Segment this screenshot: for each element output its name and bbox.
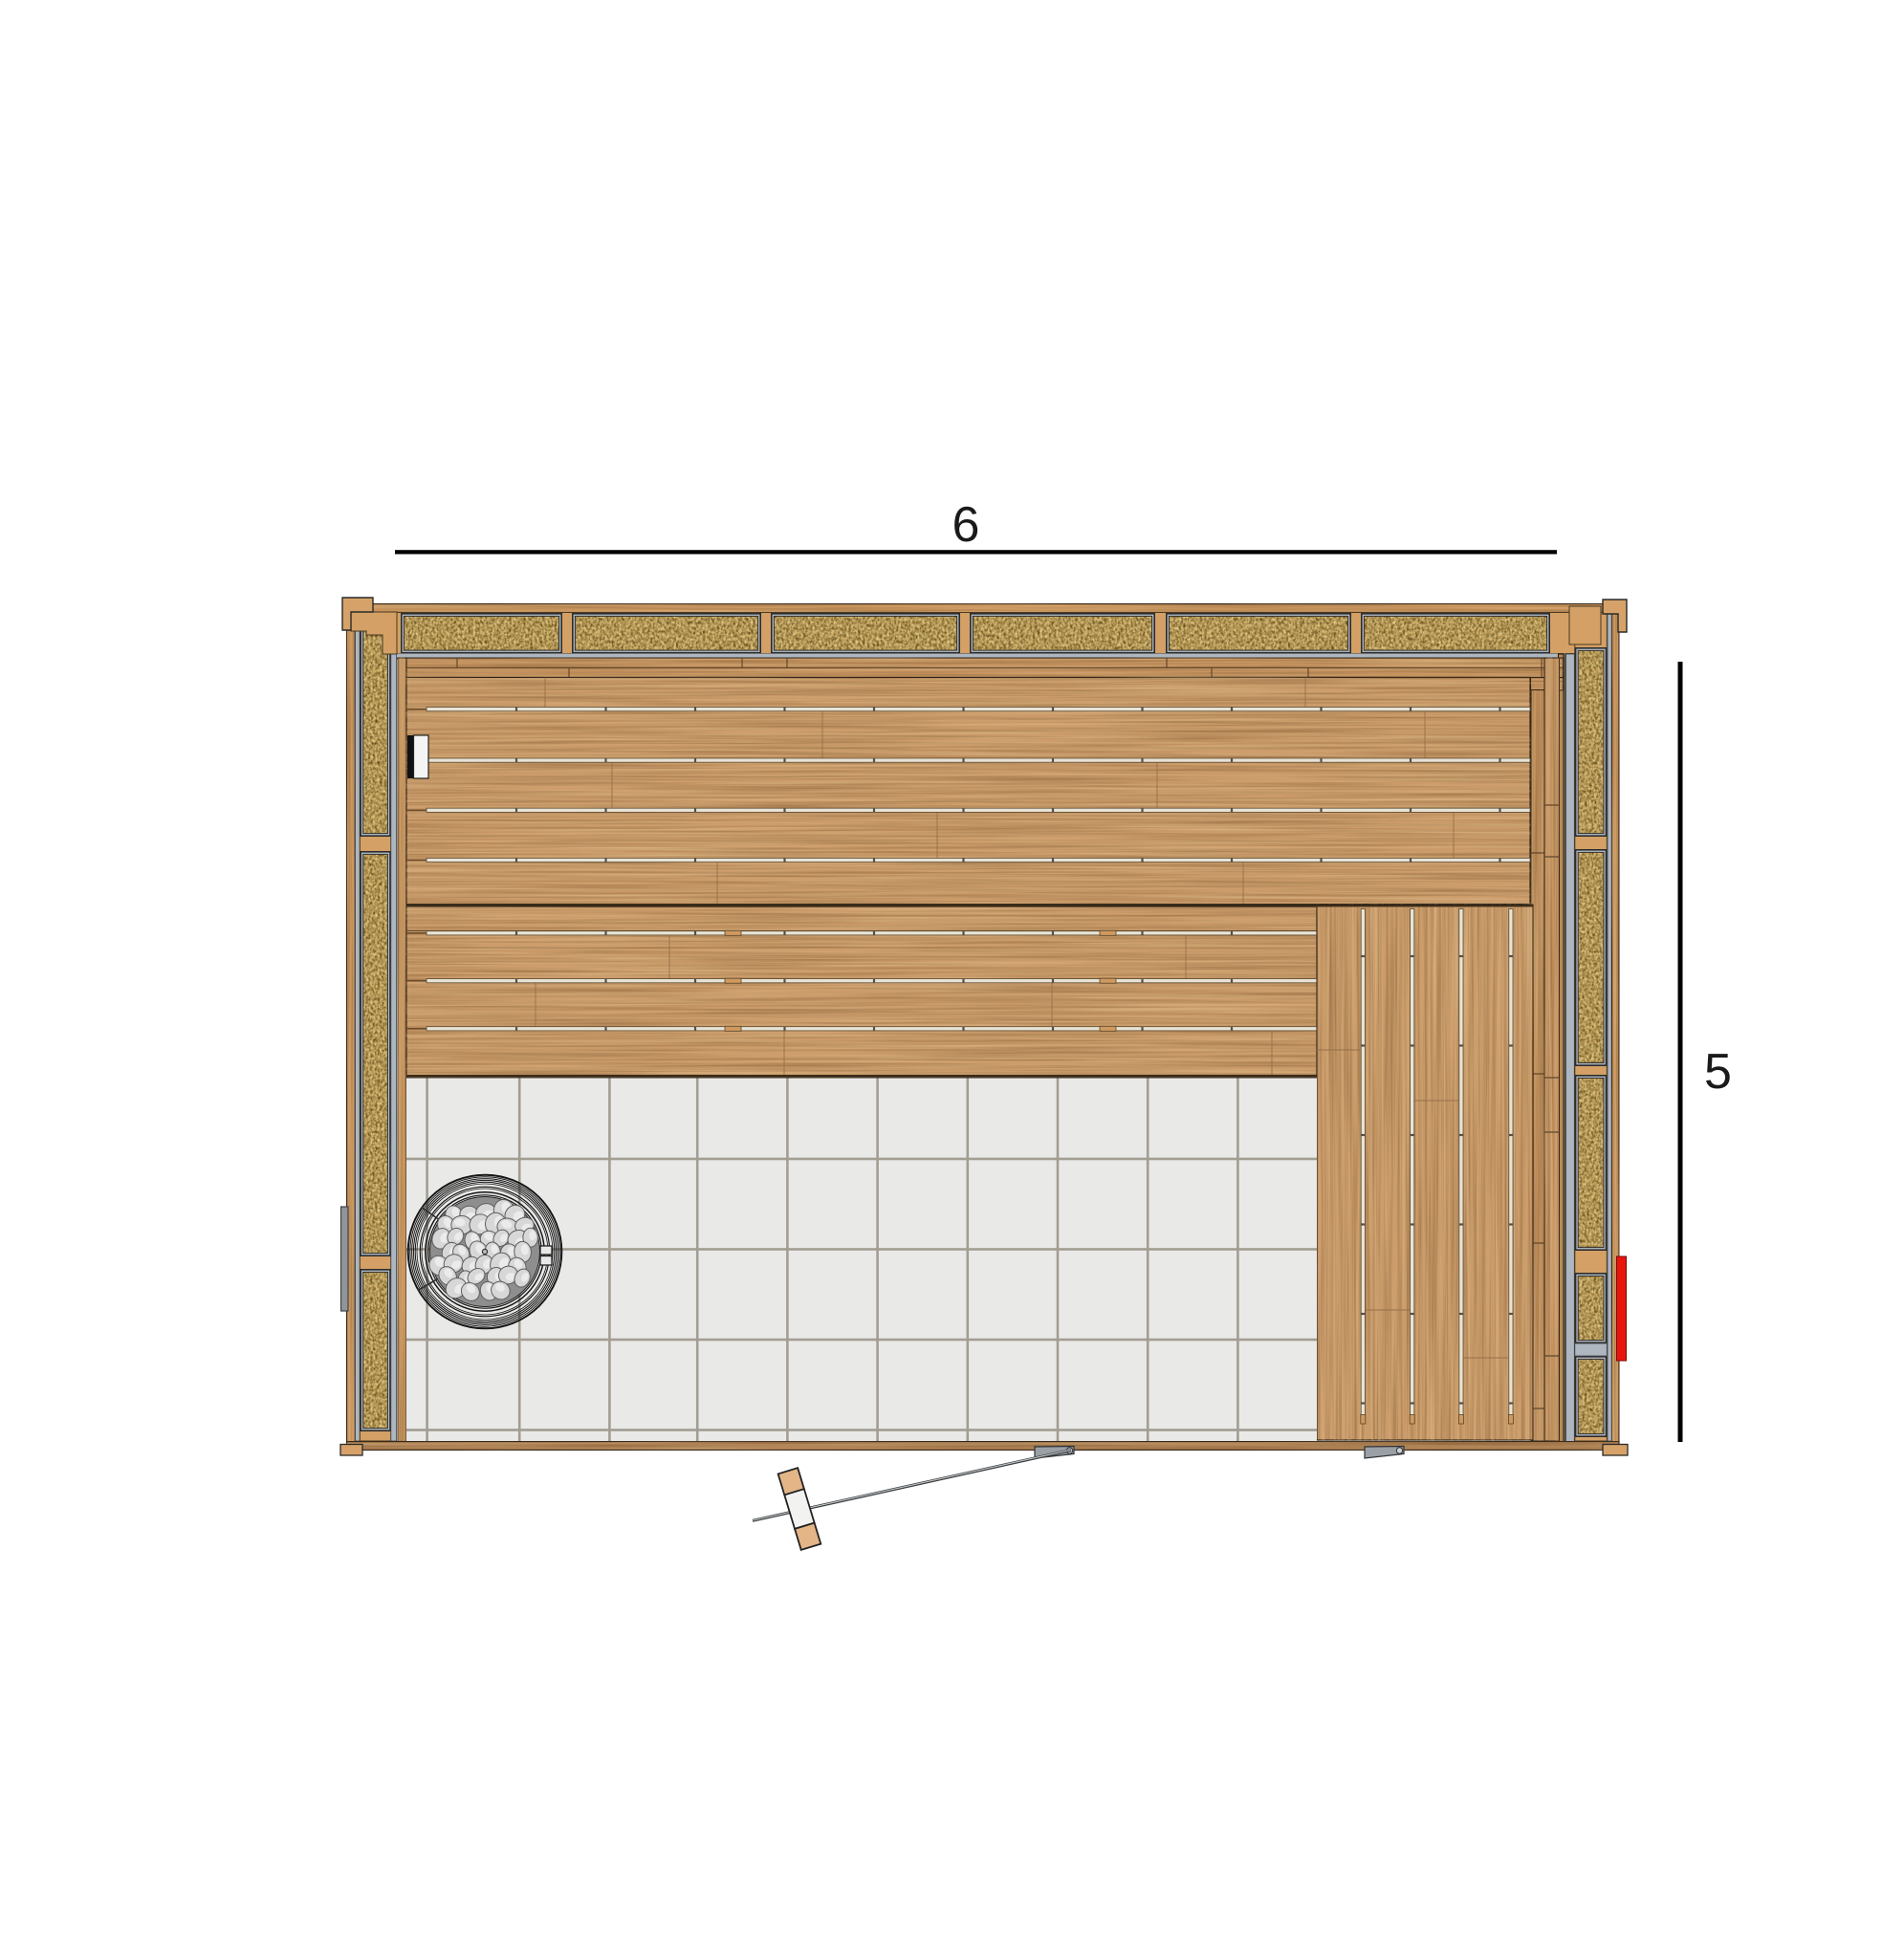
svg-text:5: 5 (1704, 1044, 1732, 1100)
svg-text:6: 6 (952, 497, 980, 553)
